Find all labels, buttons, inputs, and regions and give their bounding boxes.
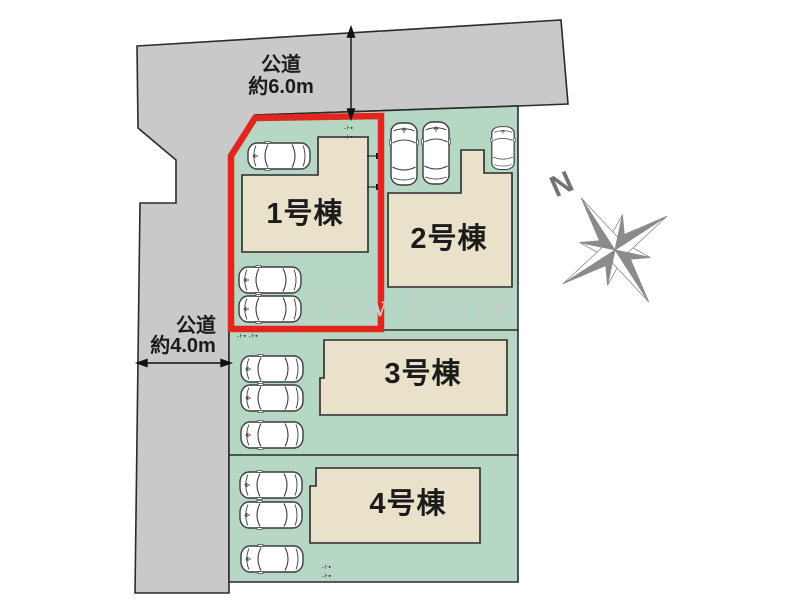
plot-1-label: 1号棟 bbox=[266, 197, 343, 230]
car-icon bbox=[241, 420, 303, 449]
car-icon bbox=[240, 500, 302, 529]
car-icon bbox=[248, 141, 310, 170]
top-road-label-line2: 約6.0m bbox=[248, 74, 314, 98]
dimension-mark: -⊦▪ bbox=[344, 125, 353, 132]
watermark: view house bbox=[306, 290, 515, 323]
left-road-label-line1: 公道 bbox=[176, 313, 216, 337]
plot-3-label: 3号棟 bbox=[384, 357, 461, 390]
dimension-mark: -⊦▪ bbox=[322, 573, 331, 580]
site-plan-screenshot: -⊦▪ -⊦▪ -⊦▪ -⊦▪ -⊦▪ -⊦▪ 1号棟 2号棟 3号棟 4号棟 … bbox=[0, 0, 800, 600]
car-icon bbox=[240, 470, 302, 499]
north-label: N bbox=[545, 165, 578, 204]
left-road-label-line2: 約4.0m bbox=[150, 333, 216, 357]
car-icon bbox=[389, 123, 418, 185]
car-icon bbox=[241, 383, 303, 412]
car-icon bbox=[490, 127, 515, 170]
plot-2-label: 2号棟 bbox=[410, 222, 487, 255]
car-icon bbox=[241, 354, 303, 383]
car-icon bbox=[421, 122, 450, 184]
car-icon bbox=[239, 294, 301, 323]
car-icon bbox=[241, 544, 303, 573]
car-icon bbox=[239, 265, 301, 294]
site-plan-svg: -⊦▪ -⊦▪ -⊦▪ -⊦▪ -⊦▪ -⊦▪ 1号棟 2号棟 3号棟 4号棟 … bbox=[0, 0, 800, 600]
dimension-mark: -⊦▪ -⊦▪ bbox=[237, 333, 258, 340]
dimension-mark: -⊦▪ bbox=[344, 134, 353, 141]
plot-4-label: 4号棟 bbox=[369, 487, 446, 520]
dimension-mark: -⊦▪ bbox=[322, 564, 331, 571]
top-road-label-line1: 公道 bbox=[261, 52, 301, 76]
